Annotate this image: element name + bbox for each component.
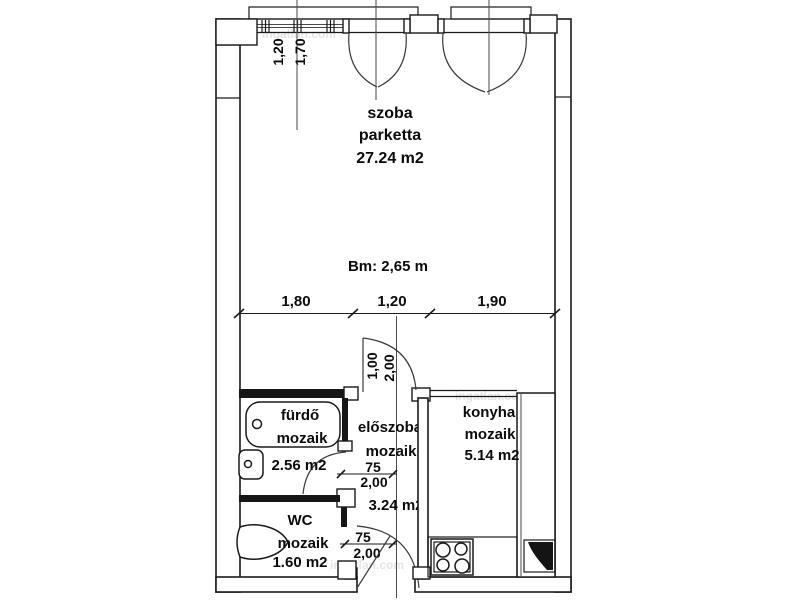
door-hinge-block [524, 19, 530, 33]
furdo-door-jamb [338, 441, 352, 451]
balcony-slab [249, 7, 418, 19]
room-name: szoba [367, 105, 412, 122]
balcony-slab [451, 7, 531, 19]
burner [455, 543, 467, 555]
room-floor: mozaik [366, 443, 418, 460]
dim-label: 1,80 [281, 293, 310, 310]
corner-pier-right [530, 15, 557, 33]
room-konyha: konyha mozaik 5.14 m2 [413, 393, 555, 579]
door-swing-arc [487, 33, 526, 92]
room-area: 2.56 m2 [271, 457, 326, 474]
dim-label: 75 [355, 529, 371, 545]
dim-label: 1,20 [270, 38, 286, 65]
bathtub-drain [253, 420, 262, 429]
burner [455, 559, 469, 573]
dim-label: 75 [365, 459, 381, 475]
furdo-bottom-wall [239, 495, 340, 502]
floorplan-page: ingatlan.com ingatlan.com ingatlan.com [0, 0, 800, 600]
furdo-right-wall [342, 398, 348, 443]
room-furdo: fürdő mozaik 2.56 m2 [239, 398, 355, 507]
bottom-wall-left [216, 577, 357, 592]
room-area: 27.24 m2 [356, 150, 424, 167]
room-area: 5.14 m2 [464, 447, 519, 464]
room-floor: mozaik [278, 535, 330, 552]
room-floor: parketta [359, 127, 421, 144]
dim-top-window: 1,20 1,70 [270, 38, 308, 65]
bottom-wall-right [415, 577, 571, 592]
floorplan-drawing: ingatlan.com ingatlan.com ingatlan.com [0, 0, 800, 600]
room-szoba: szoba parketta 27.24 m2 Bm: 2,65 m [348, 105, 428, 275]
door-hinge-block [343, 19, 349, 33]
room-area: 1.60 m2 [272, 554, 327, 571]
dim-label: 1,00 [364, 352, 380, 379]
dim-label: 1,70 [292, 38, 308, 65]
burner [436, 543, 450, 557]
corner-pier-left [216, 19, 257, 45]
middle-pier [410, 15, 438, 33]
stove [431, 539, 473, 575]
dim-label: 1,90 [477, 293, 506, 310]
door-hinge-block [438, 19, 444, 33]
door-swing-arc [349, 33, 377, 87]
room-name: WC [288, 512, 313, 529]
door-swing-arc [443, 33, 485, 92]
wc-right-wall [341, 507, 347, 527]
ceiling-height-label: Bm: 2,65 m [348, 258, 428, 275]
dim-label: 2,00 [381, 354, 397, 381]
balcony-door-2 [438, 19, 530, 92]
burner [437, 559, 449, 571]
dim-furdo-door: 75 2,00 [337, 459, 397, 490]
dim-wc-door: 75 2,00 [340, 529, 397, 561]
dim-label: 2,00 [360, 474, 387, 490]
dim-label: 2,00 [353, 545, 380, 561]
wall-segment [239, 389, 346, 398]
room-name: előszoba [358, 419, 423, 436]
room-area: 3.24 m2 [368, 497, 423, 514]
right-wall [555, 19, 571, 592]
room-floor: mozaik [465, 426, 517, 443]
door-swing-arc [378, 33, 406, 87]
room-wc: WC mozaik 1.60 m2 [237, 507, 356, 579]
dim-label: 1,20 [377, 293, 406, 310]
wc-door-jamb [338, 561, 356, 579]
sink-drain [245, 461, 252, 468]
room-floor: mozaik [277, 430, 329, 447]
room-name: fürdő [281, 407, 319, 424]
konyha-left-wall [418, 398, 428, 577]
left-wall [216, 19, 240, 592]
door-hinge-block [404, 19, 410, 33]
room-name: konyha [463, 404, 516, 421]
